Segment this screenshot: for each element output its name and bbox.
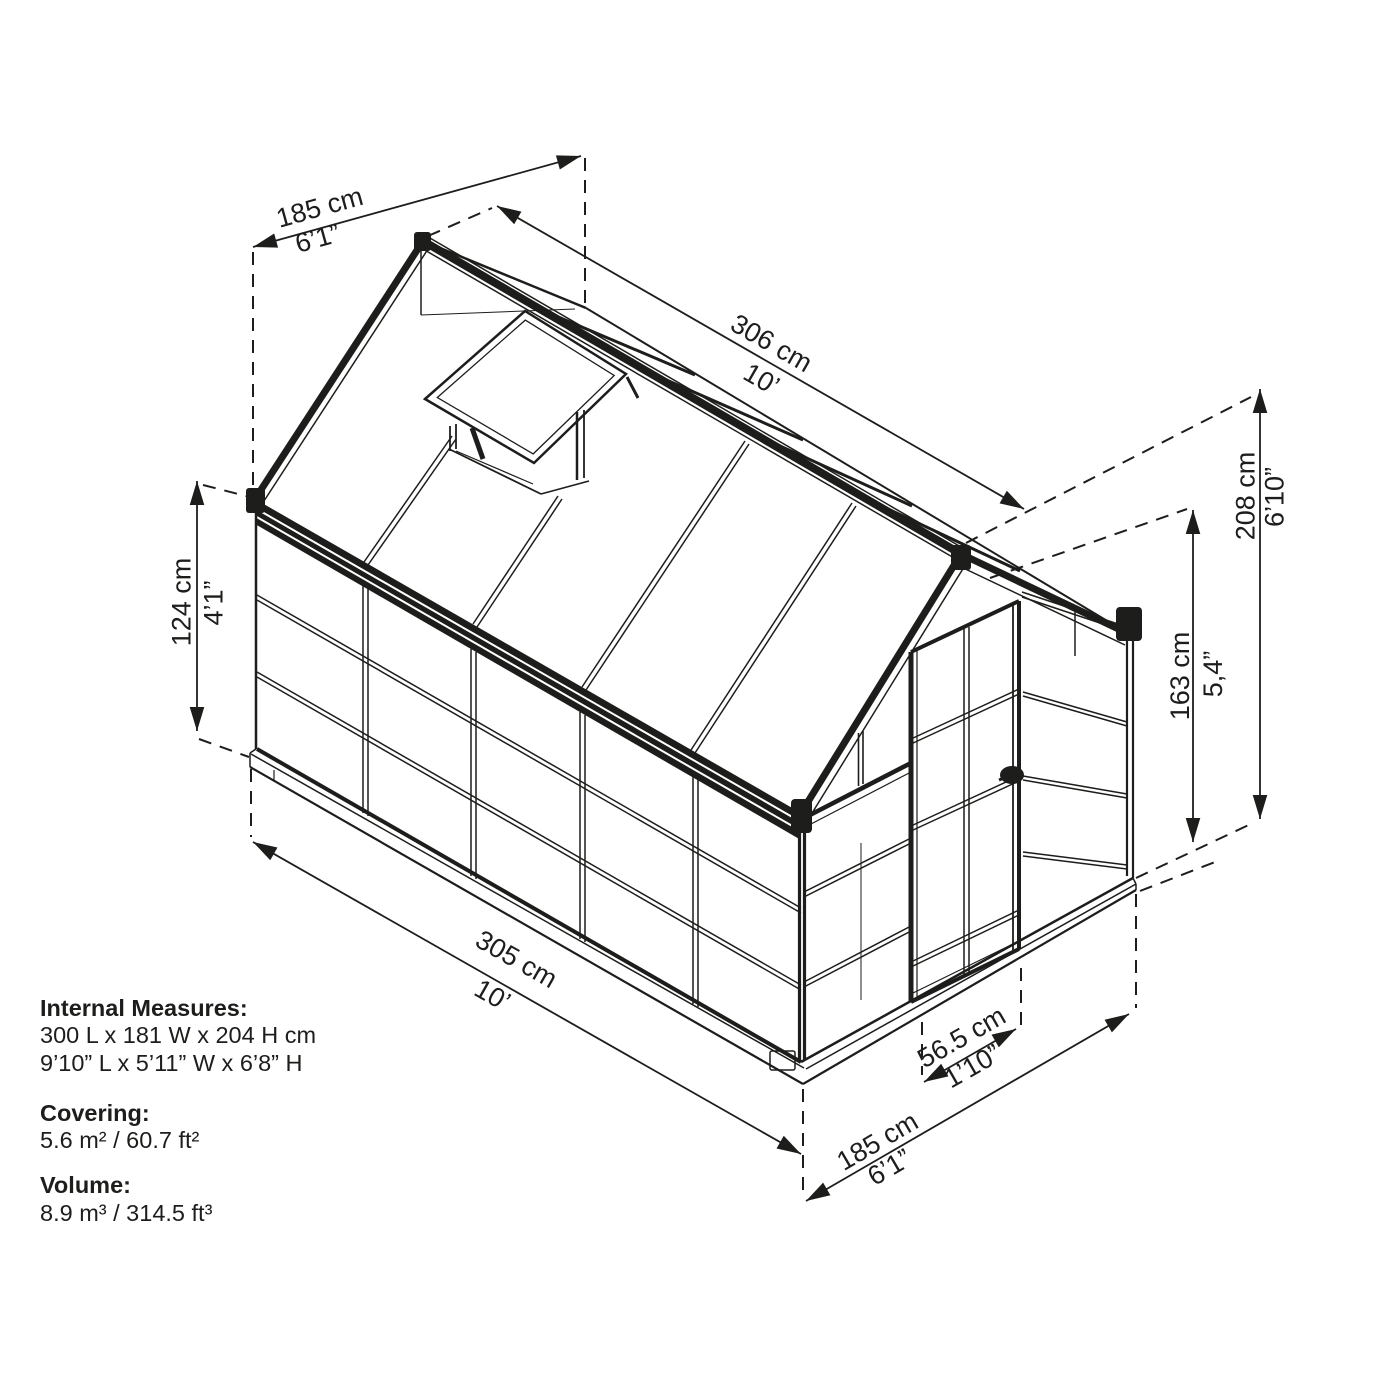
svg-text:Volume:: Volume: (40, 1172, 131, 1198)
svg-text:163 cm: 163 cm (1165, 632, 1195, 721)
svg-text:4’1”: 4’1” (199, 580, 229, 625)
svg-text:300 L x 181 W x 204 H cm: 300 L x 181 W x 204 H cm (40, 1022, 316, 1048)
svg-text:208 cm: 208 cm (1231, 452, 1261, 541)
svg-text:124 cm: 124 cm (167, 558, 197, 647)
svg-text:Covering:: Covering: (40, 1100, 150, 1126)
svg-text:Internal Measures:: Internal Measures: (40, 995, 248, 1021)
svg-text:9’10” L x 5’11” W x 6’8” H: 9’10” L x 5’11” W x 6’8” H (40, 1050, 303, 1076)
svg-text:8.9 m³ / 314.5 ft³: 8.9 m³ / 314.5 ft³ (40, 1200, 213, 1226)
svg-text:5,4”: 5,4” (1198, 651, 1228, 698)
svg-text:5.6 m² / 60.7 ft²: 5.6 m² / 60.7 ft² (40, 1127, 200, 1153)
svg-text:6’10”: 6’10” (1260, 467, 1290, 527)
